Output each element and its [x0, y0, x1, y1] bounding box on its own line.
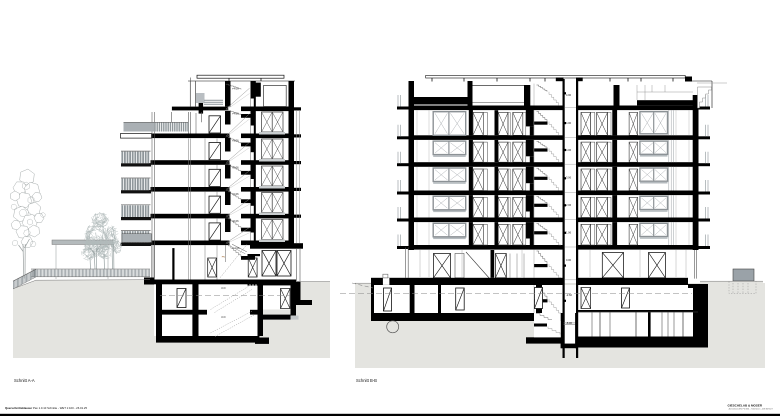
svg-text:AVD: AVD — [221, 287, 226, 290]
svg-text:+4.06: +4.06 — [232, 112, 239, 116]
svg-text:+1.06: +1.06 — [232, 192, 239, 196]
svg-text:Architekten ATU Pb 08/4 - T100: Architekten ATU Pb 08/4 - T100 Ideen - 4… — [729, 407, 773, 410]
svg-text:0.00: 0.00 — [566, 258, 572, 262]
svg-text:-5.30: -5.30 — [566, 321, 572, 325]
svg-text:+3.06: +3.06 — [232, 139, 239, 143]
svg-text:1.06: 1.06 — [566, 231, 572, 235]
svg-text:4.06: 4.06 — [566, 148, 572, 152]
svg-text:PN: PN — [222, 256, 225, 258]
svg-text:3.06: 3.06 — [566, 176, 572, 180]
svg-text:Schnitt A-A: Schnitt A-A — [14, 378, 35, 383]
svg-text:GIESCHELAB & MOSER: GIESCHELAB & MOSER — [727, 404, 762, 408]
svg-text:+0.06: +0.06 — [232, 219, 239, 223]
svg-text:AVD: AVD — [221, 316, 226, 319]
svg-text:4.90: 4.90 — [566, 93, 572, 97]
svg-text:4.00: 4.00 — [566, 121, 572, 125]
svg-text:+2.06: +2.06 — [232, 166, 239, 170]
svg-text:Schnitt B-B: Schnitt B-B — [356, 378, 377, 383]
svg-text:+-1.06: +-1.06 — [232, 246, 240, 250]
svg-text:Querschnittsklausur Pav 1.0.1: Querschnittsklausur Pav 1.0.10 Schnitte … — [5, 406, 87, 410]
svg-text:2.06: 2.06 — [566, 203, 572, 207]
svg-text:+4.06: +4.06 — [232, 87, 239, 91]
